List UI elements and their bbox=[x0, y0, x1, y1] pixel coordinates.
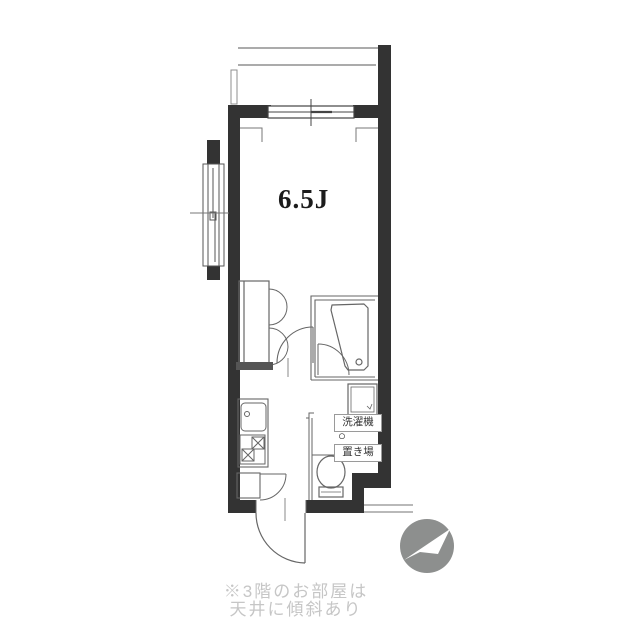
north-arrow-icon bbox=[400, 519, 454, 573]
balcony-railing bbox=[231, 48, 378, 104]
floor-plan-drawing bbox=[0, 0, 640, 640]
caption-note-line2: 天井に傾斜あり bbox=[0, 600, 592, 619]
kitchen-sink bbox=[241, 403, 266, 431]
caption-note-line1: ※3階のお部屋は bbox=[0, 582, 592, 601]
entrance-door bbox=[256, 498, 306, 563]
washer-label-line2: 置き場 bbox=[334, 444, 382, 462]
stove bbox=[240, 435, 265, 464]
toilet bbox=[317, 456, 345, 497]
bath-door bbox=[318, 344, 349, 375]
shoe-cabinet bbox=[237, 473, 260, 498]
window-alcove-lines bbox=[240, 128, 378, 142]
floor-plan: 6.5J 洗濯機 ○ 置き場 ※3階のお部屋は 天井に傾斜あり bbox=[0, 0, 640, 640]
room-door bbox=[277, 327, 313, 363]
room-window bbox=[268, 99, 354, 126]
room-size-label: 6.5J bbox=[278, 184, 348, 215]
side-window bbox=[190, 140, 229, 280]
washer-faucet-symbol: ○ bbox=[338, 428, 346, 443]
washer-pan bbox=[348, 384, 377, 415]
bathtub bbox=[331, 304, 368, 370]
closet bbox=[239, 281, 269, 366]
corridor-lines bbox=[364, 505, 413, 512]
hall-door bbox=[260, 474, 286, 500]
